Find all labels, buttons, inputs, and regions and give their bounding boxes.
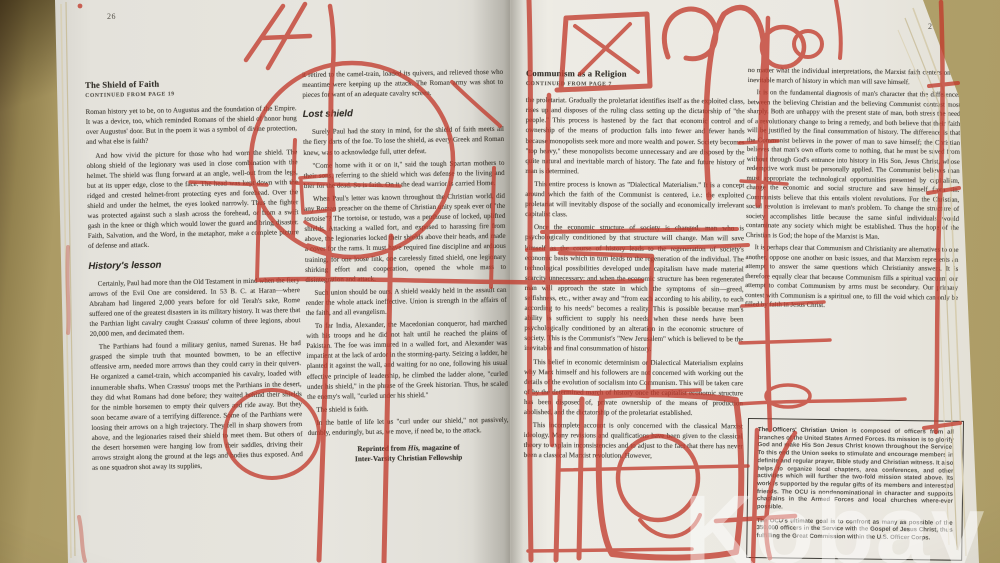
credit-magazine-name: His, <box>408 443 421 452</box>
continued-from-note: CONTINUED FROM PAGE 7 <box>526 79 745 90</box>
body-paragraph: the proletariat. Gradually the proletari… <box>525 95 744 177</box>
body-paragraph: This entire process is known as "Dialect… <box>525 179 744 221</box>
credit-organization: Inter-Varsity Christian Fellowship <box>355 453 462 464</box>
body-paragraph: This belief in economic determinism or D… <box>524 357 743 419</box>
left-page: 26 The Shield of Faith CONTINUED FROM PA… <box>55 0 510 563</box>
body-paragraph: Roman history yet to be, on to Augustus … <box>85 103 297 147</box>
right-page: 27 Communism as a Religion CONTINUED FRO… <box>510 0 980 563</box>
credit-text: magazine of <box>420 443 459 453</box>
body-paragraph: It is perhaps clear that Communism and C… <box>745 243 959 312</box>
body-paragraph: no matter what the individual interpreta… <box>748 66 961 88</box>
right-page-column-1: Communism as a Religion CONTINUED FROM P… <box>523 68 745 563</box>
open-magazine: 26 The Shield of Faith CONTINUED FROM PA… <box>0 0 1000 563</box>
ocu-box-paragraph: The OCU's ultimate goal is to confront a… <box>756 518 952 544</box>
background-shadow-corner <box>0 0 60 140</box>
body-paragraph: It is on the fundamental diagnosis of ma… <box>746 88 961 243</box>
ocu-box-title: The Officers' Christian Union <box>758 427 848 434</box>
ocu-box-paragraph: The Officers' Christian Union is compose… <box>757 427 954 514</box>
book-photo: 26 The Shield of Faith CONTINUED FROM PA… <box>0 0 1000 563</box>
body-paragraph: The Parthians had found a military geniu… <box>90 338 303 473</box>
book-spine-shadow <box>472 0 548 563</box>
credit-text: Reprinted from <box>357 443 408 453</box>
officers-christian-union-box: The Officers' Christian Union is compose… <box>746 418 964 561</box>
article-title-communism-as-religion: Communism as a Religion <box>526 68 745 79</box>
body-paragraph: Once the economic structure of society i… <box>524 222 744 355</box>
page-number-left: 26 <box>107 12 116 21</box>
right-page-column-2: no matter what the individual interpreta… <box>743 66 961 417</box>
left-page-column-1: The Shield of Faith CONTINUED FROM PAGE … <box>85 76 305 562</box>
body-paragraph: Certainly, Paul had more than the Old Te… <box>89 275 301 339</box>
body-paragraph: And how vivid the picture for those who … <box>86 147 299 252</box>
ocu-box-text: is composed of officers from all branche… <box>757 428 954 510</box>
body-paragraph: This incomplete account is only concerne… <box>524 420 743 462</box>
subheading-historys-lesson: History's lesson <box>88 258 299 272</box>
